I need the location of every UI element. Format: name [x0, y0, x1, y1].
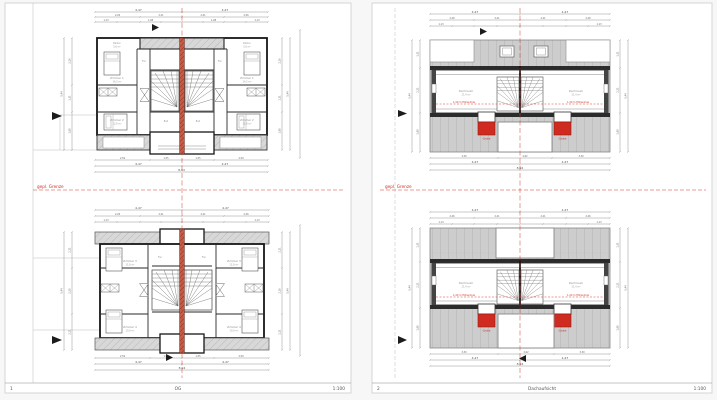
- svg-text:Dachraum: Dachraum: [569, 281, 584, 285]
- svg-text:2,26: 2,26: [585, 215, 591, 218]
- svg-text:1,13: 1,13: [254, 219, 260, 222]
- stair-left: [151, 71, 179, 111]
- svg-text:11,6 m²: 11,6 m²: [229, 264, 238, 267]
- skylight: [534, 46, 548, 57]
- svg-text:1,88: 1,88: [279, 128, 282, 134]
- svg-text:1,31: 1,31: [617, 242, 620, 248]
- svg-text:1,88: 1,88: [617, 129, 620, 135]
- svg-text:Dachraum: Dachraum: [569, 89, 584, 93]
- page-1-floor-plans: Balkon 5,8 m² Balkon 5,8 m² Zimmer 1 14,…: [5, 3, 351, 393]
- svg-text:4,47: 4,47: [135, 8, 142, 12]
- svg-text:4,47: 4,47: [135, 206, 142, 210]
- svg-text:5,44: 5,44: [287, 288, 290, 294]
- sheet-title: Dachaufsicht: [528, 386, 556, 392]
- svg-text:3,30: 3,30: [461, 351, 467, 354]
- svg-text:14,2 m²: 14,2 m²: [112, 81, 121, 84]
- svg-text:4,47: 4,47: [472, 10, 479, 14]
- boundary-label: gepl. Grenze: [385, 184, 412, 189]
- svg-text:2,21: 2,21: [279, 329, 282, 335]
- svg-text:2,59: 2,59: [120, 355, 126, 358]
- svg-text:1,31: 1,31: [279, 95, 282, 101]
- svg-text:Bad: Bad: [164, 120, 169, 123]
- svg-text:21,4 m²: 21,4 m²: [571, 286, 580, 289]
- sheet-scale: 1:100: [694, 386, 707, 392]
- svg-text:2,26: 2,26: [243, 14, 249, 17]
- svg-text:4,47: 4,47: [222, 360, 229, 364]
- svg-text:1,13: 1,13: [596, 221, 602, 224]
- svg-text:3,30: 3,30: [461, 155, 467, 158]
- svg-text:2,26: 2,26: [115, 14, 121, 17]
- svg-text:1,88: 1,88: [417, 325, 420, 331]
- svg-text:4,47: 4,47: [472, 208, 479, 212]
- skylight: [500, 46, 514, 57]
- svg-text:1,13: 1,13: [254, 19, 260, 22]
- svg-text:1,40 m Höhenlinie: 1,40 m Höhenlinie: [567, 101, 589, 104]
- svg-text:2,59: 2,59: [238, 157, 244, 160]
- svg-text:4,47: 4,47: [472, 356, 479, 360]
- svg-text:Dachraum: Dachraum: [459, 89, 474, 93]
- svg-text:Bad: Bad: [196, 120, 201, 123]
- svg-text:1,40 m Höhenlinie: 1,40 m Höhenlinie: [453, 101, 475, 104]
- svg-text:Gaube: Gaube: [483, 330, 491, 333]
- svg-text:11,6 m²: 11,6 m²: [125, 264, 134, 267]
- svg-text:1,88: 1,88: [617, 325, 620, 331]
- svg-text:1,31: 1,31: [69, 95, 72, 101]
- svg-text:5,44: 5,44: [625, 285, 628, 291]
- svg-text:2,21: 2,21: [417, 282, 420, 288]
- svg-text:5,44: 5,44: [61, 91, 64, 97]
- svg-text:Gaube: Gaube: [483, 138, 491, 141]
- dormer-marked-red: [478, 304, 495, 327]
- svg-text:2,21: 2,21: [494, 17, 500, 20]
- svg-text:Zimmer 2: Zimmer 2: [110, 118, 124, 122]
- svg-text:1,13: 1,13: [103, 219, 109, 222]
- svg-text:5,44: 5,44: [409, 93, 412, 99]
- svg-text:2,26: 2,26: [449, 215, 455, 218]
- svg-text:2,21: 2,21: [158, 213, 164, 216]
- svg-text:21,4 m²: 21,4 m²: [461, 94, 470, 97]
- svg-text:Zimmer 1: Zimmer 1: [240, 76, 254, 80]
- svg-text:Flur: Flur: [202, 256, 206, 259]
- svg-text:14,2 m²: 14,2 m²: [242, 81, 251, 84]
- svg-text:Flur: Flur: [218, 60, 222, 63]
- svg-text:5,44: 5,44: [625, 93, 628, 99]
- svg-text:Flur: Flur: [142, 60, 146, 63]
- svg-text:1,55: 1,55: [195, 355, 201, 358]
- svg-text:1,31: 1,31: [617, 51, 620, 57]
- svg-text:Gaube: Gaube: [559, 138, 567, 141]
- svg-text:4,47: 4,47: [562, 10, 569, 14]
- svg-text:21,4 m²: 21,4 m²: [461, 286, 470, 289]
- svg-text:12,8 m²: 12,8 m²: [242, 123, 251, 126]
- svg-text:5,44: 5,44: [409, 285, 412, 291]
- svg-text:2,21: 2,21: [69, 247, 72, 253]
- svg-text:1,08: 1,08: [211, 19, 217, 22]
- sheet-number: 1: [10, 386, 13, 392]
- svg-text:Zimmer 3: Zimmer 3: [123, 259, 137, 263]
- svg-text:2,26: 2,26: [69, 288, 72, 294]
- svg-text:Zimmer 4: Zimmer 4: [227, 325, 241, 329]
- svg-text:4,47: 4,47: [135, 162, 142, 166]
- svg-text:2,21: 2,21: [494, 215, 500, 218]
- boundary-label: gepl. Grenze: [37, 184, 64, 189]
- dormer-marked-red: [478, 112, 495, 135]
- svg-text:2,21: 2,21: [540, 215, 546, 218]
- svg-text:2,21: 2,21: [617, 282, 620, 288]
- svg-text:4,47: 4,47: [222, 162, 229, 166]
- svg-text:4,47: 4,47: [562, 208, 569, 212]
- architectural-drawing: Balkon 5,8 m² Balkon 5,8 m² Zimmer 1 14,…: [0, 0, 717, 400]
- svg-text:1,08: 1,08: [148, 19, 154, 22]
- svg-text:2,59: 2,59: [120, 157, 126, 160]
- sheet-scale: 1:100: [333, 386, 346, 392]
- svg-text:3,30: 3,30: [579, 351, 585, 354]
- svg-text:4,47: 4,47: [562, 356, 569, 360]
- svg-text:4,47: 4,47: [222, 206, 229, 210]
- svg-text:2,21: 2,21: [200, 14, 206, 17]
- svg-text:Zimmer 4: Zimmer 4: [123, 325, 137, 329]
- svg-text:1,88: 1,88: [417, 129, 420, 135]
- dormer-marked-red: [554, 112, 571, 135]
- svg-text:4,47: 4,47: [562, 160, 569, 164]
- dormer-marked-red: [554, 304, 571, 327]
- svg-text:Zimmer 2: Zimmer 2: [240, 118, 254, 122]
- svg-text:1,55: 1,55: [195, 157, 201, 160]
- svg-text:12,8 m²: 12,8 m²: [112, 123, 121, 126]
- svg-text:2,26: 2,26: [585, 17, 591, 20]
- svg-text:2,21: 2,21: [279, 247, 282, 253]
- svg-text:4,47: 4,47: [222, 8, 229, 12]
- svg-text:2,21: 2,21: [417, 87, 420, 93]
- svg-text:2,21: 2,21: [158, 14, 164, 17]
- svg-text:Flur: Flur: [158, 256, 162, 259]
- svg-text:1,13: 1,13: [103, 19, 109, 22]
- svg-text:2,21: 2,21: [617, 87, 620, 93]
- svg-text:1,40 m Höhenlinie: 1,40 m Höhenlinie: [567, 294, 589, 297]
- sheet-title: OG: [175, 386, 182, 392]
- svg-text:10,9 m²: 10,9 m²: [125, 330, 134, 333]
- svg-text:4,47: 4,47: [135, 360, 142, 364]
- svg-text:Zimmer 1: Zimmer 1: [110, 76, 124, 80]
- svg-text:2,62: 2,62: [523, 351, 529, 354]
- svg-text:1,55: 1,55: [163, 157, 169, 160]
- svg-text:Gaube: Gaube: [559, 330, 567, 333]
- svg-text:2,21: 2,21: [69, 329, 72, 335]
- svg-text:5,44: 5,44: [61, 288, 64, 294]
- svg-text:2,26: 2,26: [115, 213, 121, 216]
- sheet-number: 2: [377, 386, 380, 392]
- svg-text:5,44: 5,44: [287, 91, 290, 97]
- svg-text:2,59: 2,59: [238, 355, 244, 358]
- svg-text:1,40 m Höhenlinie: 1,40 m Höhenlinie: [453, 294, 475, 297]
- svg-text:4,47: 4,47: [472, 160, 479, 164]
- svg-text:5,8 m²: 5,8 m²: [113, 46, 121, 49]
- svg-text:1,13: 1,13: [438, 221, 444, 224]
- svg-text:2,26: 2,26: [69, 58, 72, 64]
- svg-text:3,30: 3,30: [578, 155, 584, 158]
- svg-text:Dachraum: Dachraum: [459, 281, 474, 285]
- svg-text:1,13: 1,13: [596, 23, 602, 26]
- svg-text:10,9 m²: 10,9 m²: [229, 330, 238, 333]
- svg-text:8,94: 8,94: [178, 168, 185, 172]
- drawing-sheet-canvas: Balkon 5,8 m² Balkon 5,8 m² Zimmer 1 14,…: [0, 0, 717, 400]
- svg-text:2,26: 2,26: [449, 17, 455, 20]
- svg-text:2,62: 2,62: [522, 155, 528, 158]
- svg-text:1,13: 1,13: [438, 23, 444, 26]
- stair-right: [185, 71, 213, 111]
- svg-text:Zimmer 3: Zimmer 3: [227, 259, 241, 263]
- svg-text:2,26: 2,26: [243, 213, 249, 216]
- svg-text:2,26: 2,26: [279, 288, 282, 294]
- svg-text:2,21: 2,21: [540, 17, 546, 20]
- svg-text:2,21: 2,21: [200, 213, 206, 216]
- svg-text:1,88: 1,88: [69, 128, 72, 134]
- svg-text:1,31: 1,31: [417, 51, 420, 57]
- svg-text:5,8 m²: 5,8 m²: [243, 46, 251, 49]
- svg-text:21,4 m²: 21,4 m²: [571, 94, 580, 97]
- page-2-roof-plans: Dachraum 21,4 m² Dachraum 21,4 m² 1,40 m…: [372, 3, 712, 393]
- svg-text:1,31: 1,31: [417, 242, 420, 248]
- svg-text:2,26: 2,26: [279, 58, 282, 64]
